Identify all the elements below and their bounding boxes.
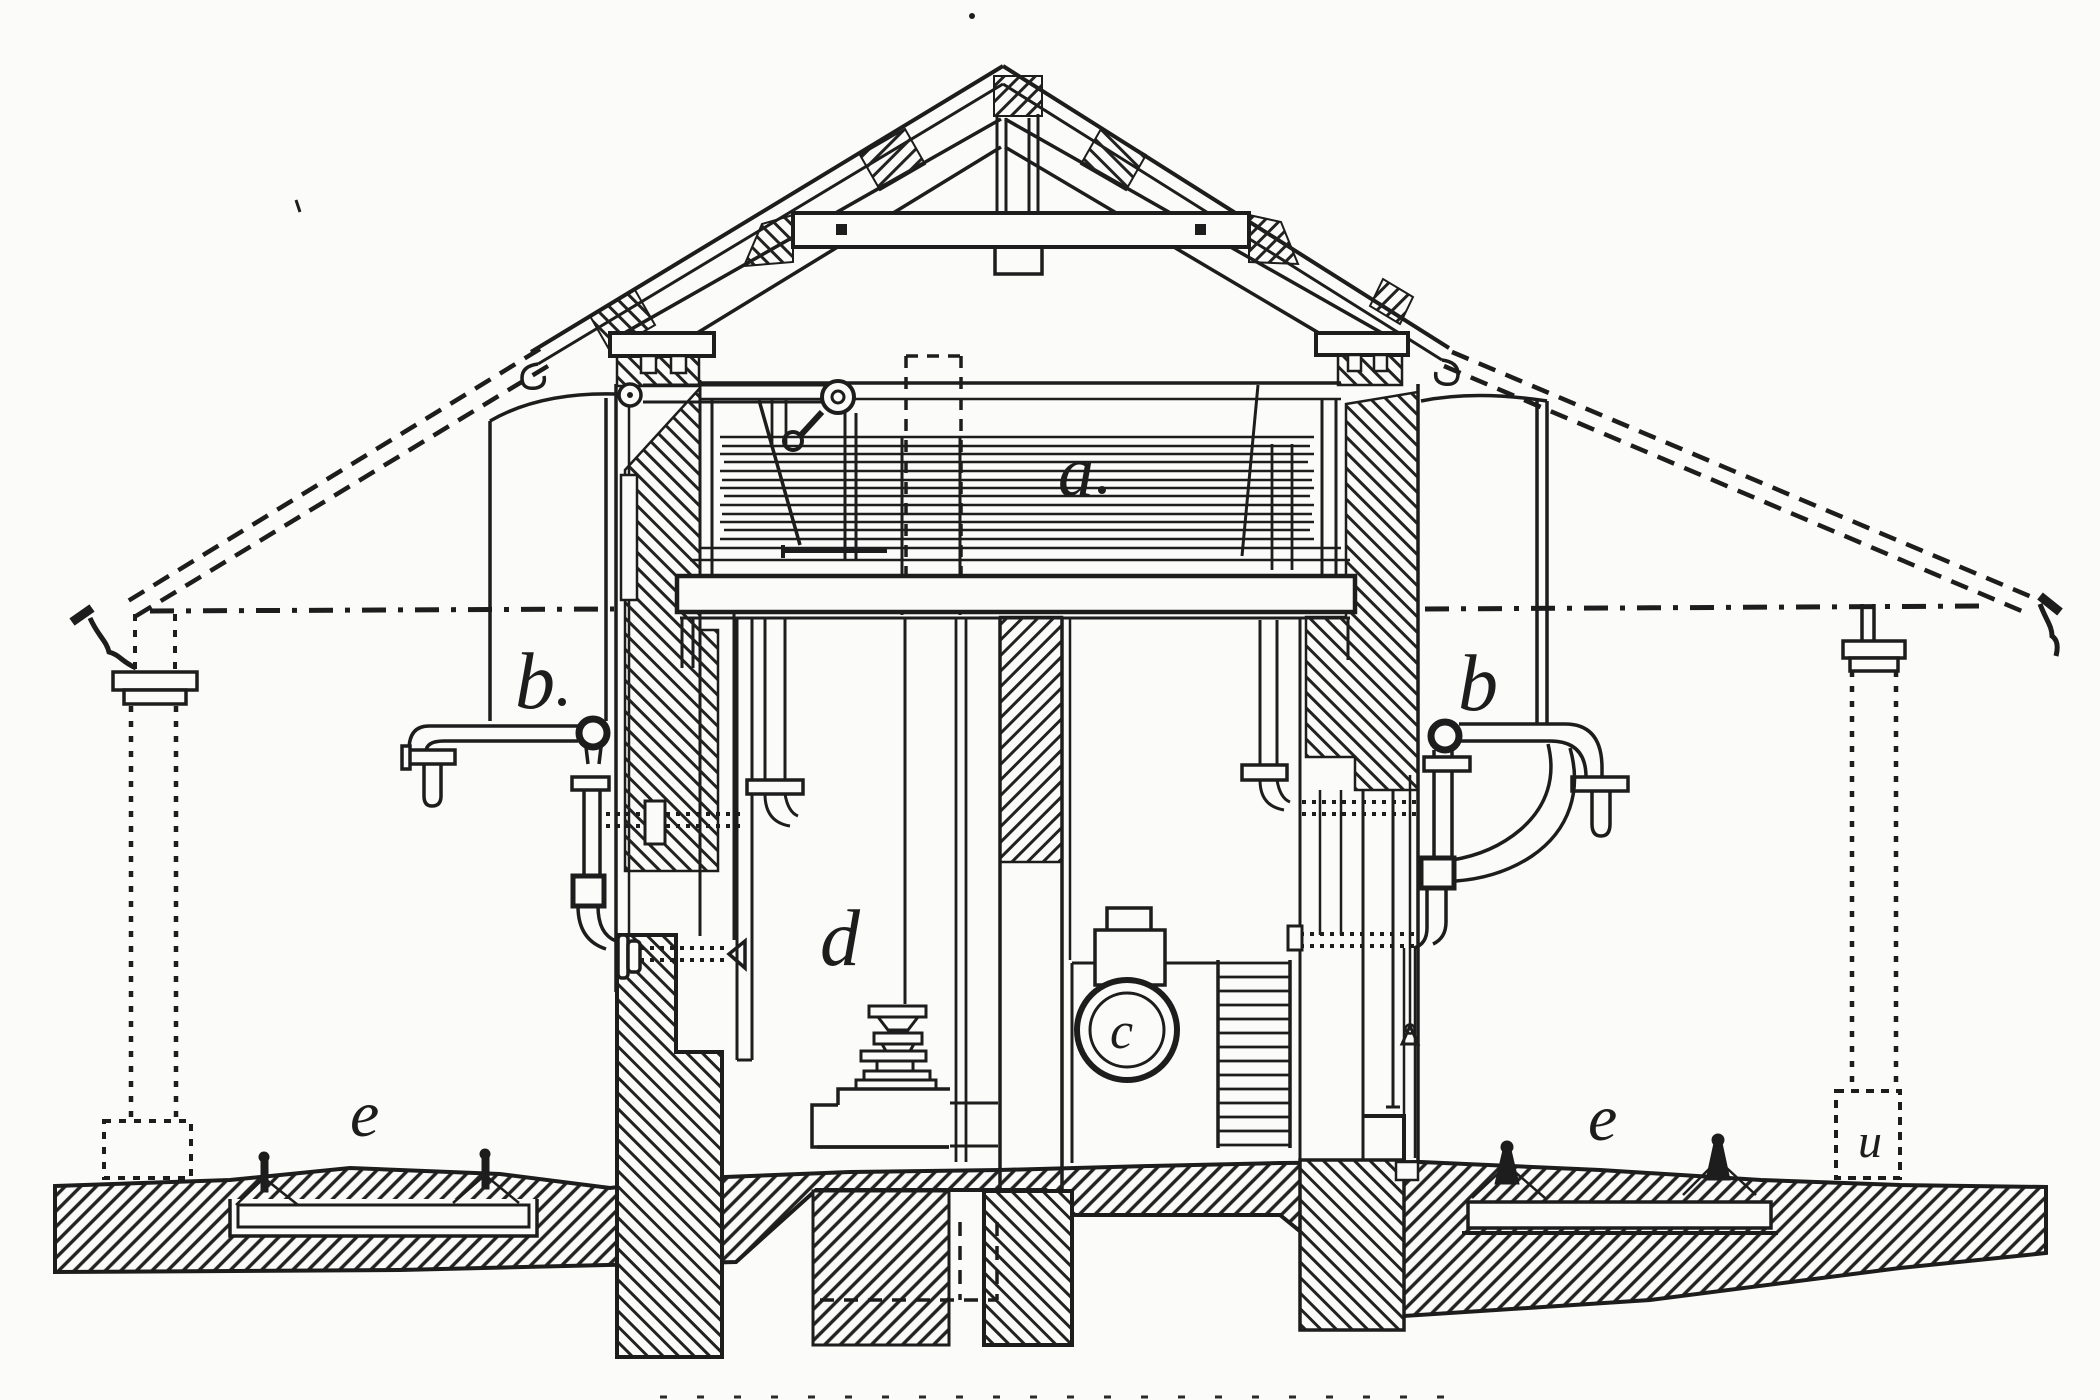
svg-text:c: c bbox=[1110, 1003, 1133, 1060]
svg-text:a: a bbox=[1058, 432, 1094, 512]
svg-text:b: b bbox=[1458, 640, 1498, 728]
svg-text:e: e bbox=[1588, 1082, 1617, 1155]
svg-text:u: u bbox=[1858, 1115, 1882, 1168]
svg-text:b: b bbox=[515, 638, 555, 726]
svg-text:e: e bbox=[350, 1078, 379, 1151]
svg-text:d: d bbox=[820, 895, 861, 983]
